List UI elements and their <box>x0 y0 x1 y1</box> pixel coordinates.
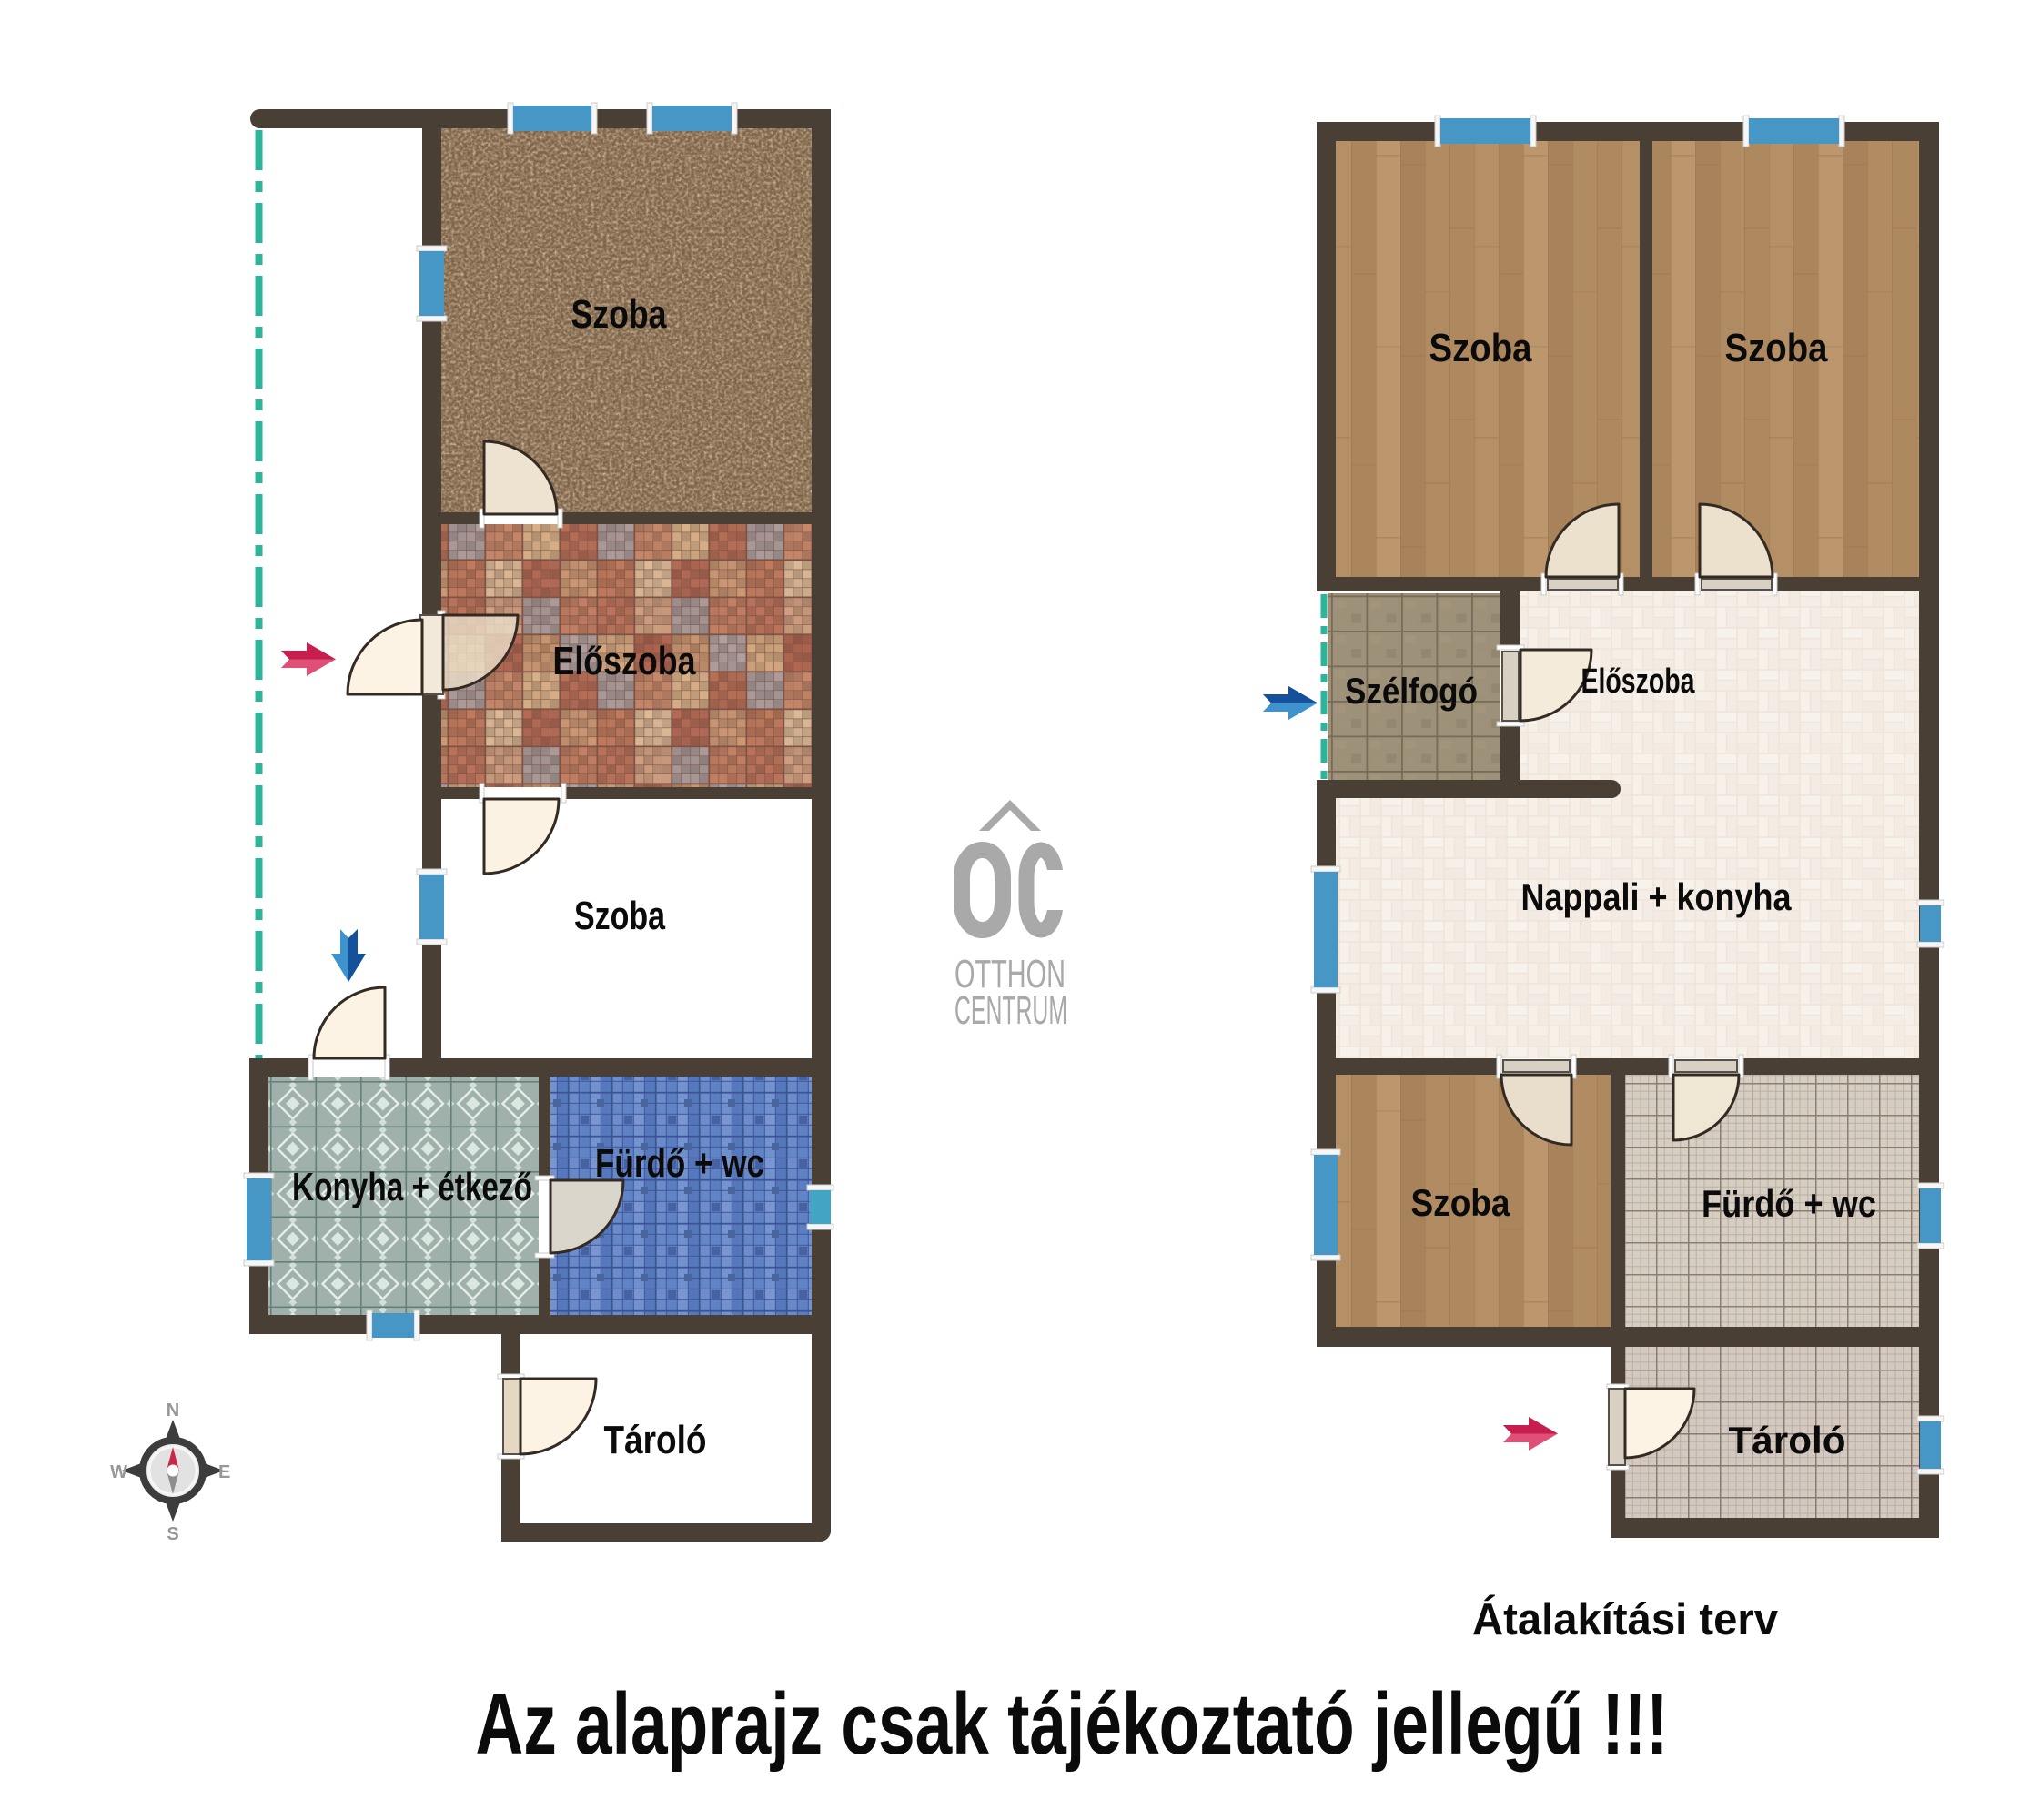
svg-text:N: N <box>167 1400 179 1421</box>
svg-text:W: W <box>110 1462 127 1482</box>
svg-text:Tároló: Tároló <box>604 1418 707 1462</box>
svg-text:Szoba: Szoba <box>1411 1181 1511 1224</box>
svg-text:CENTRUM: CENTRUM <box>954 988 1067 1033</box>
svg-text:Fürdő + wc: Fürdő + wc <box>595 1141 764 1186</box>
svg-text:Előszoba: Előszoba <box>1581 662 1696 701</box>
svg-text:Szoba: Szoba <box>574 894 665 938</box>
svg-text:Szoba: Szoba <box>571 292 667 337</box>
svg-text:E: E <box>218 1462 230 1482</box>
svg-text:Tároló: Tároló <box>1729 1419 1846 1461</box>
svg-text:Az alaprajz csak tájékoztató j: Az alaprajz csak tájékoztató jellegű !!! <box>476 1675 1669 1773</box>
svg-text:Szélfogó: Szélfogó <box>1345 672 1478 712</box>
svg-text:Előszoba: Előszoba <box>553 639 696 683</box>
svg-text:Nappali + konyha: Nappali + konyha <box>1521 875 1793 918</box>
svg-text:Konyha + étkező: Konyha + étkező <box>292 1165 532 1209</box>
svg-text:Átalakítási terv: Átalakítási terv <box>1472 1595 1779 1644</box>
svg-text:Szoba: Szoba <box>1725 326 1828 370</box>
svg-text:Szoba: Szoba <box>1429 326 1532 370</box>
svg-text:Fürdő + wc: Fürdő + wc <box>1702 1182 1876 1225</box>
svg-text:S: S <box>167 1524 178 1544</box>
